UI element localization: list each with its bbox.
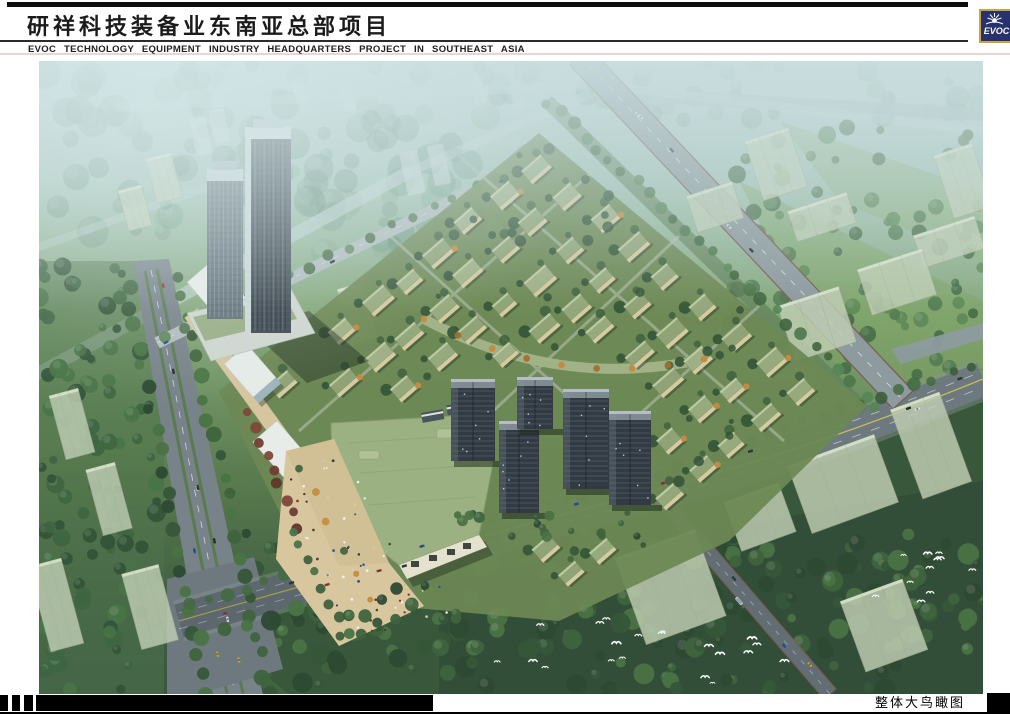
aerial-render [39, 61, 983, 694]
header-accent-line [0, 53, 1010, 55]
aerial-render-canvas [39, 61, 983, 694]
sunburst-icon [981, 12, 1008, 25]
footer-tick-mark [24, 695, 33, 711]
footer-tick-mark [12, 695, 20, 711]
logo-wordmark: EVOC [983, 26, 1010, 36]
footer-corner-block [987, 693, 1010, 714]
header-top-bar [7, 2, 968, 7]
footer-tick-mark [0, 695, 8, 711]
evoc-logo: EVOC [979, 9, 1010, 43]
presentation-board: 研祥科技装备业东南亚总部项目 EVOC TECHNOLOGY EQUIPMENT… [0, 0, 1010, 714]
footer-bar [36, 695, 433, 711]
page-title: 研祥科技装备业东南亚总部项目 [27, 9, 391, 41]
drawing-caption: 整体大鸟瞰图 [433, 694, 965, 712]
title-divider [0, 40, 968, 42]
